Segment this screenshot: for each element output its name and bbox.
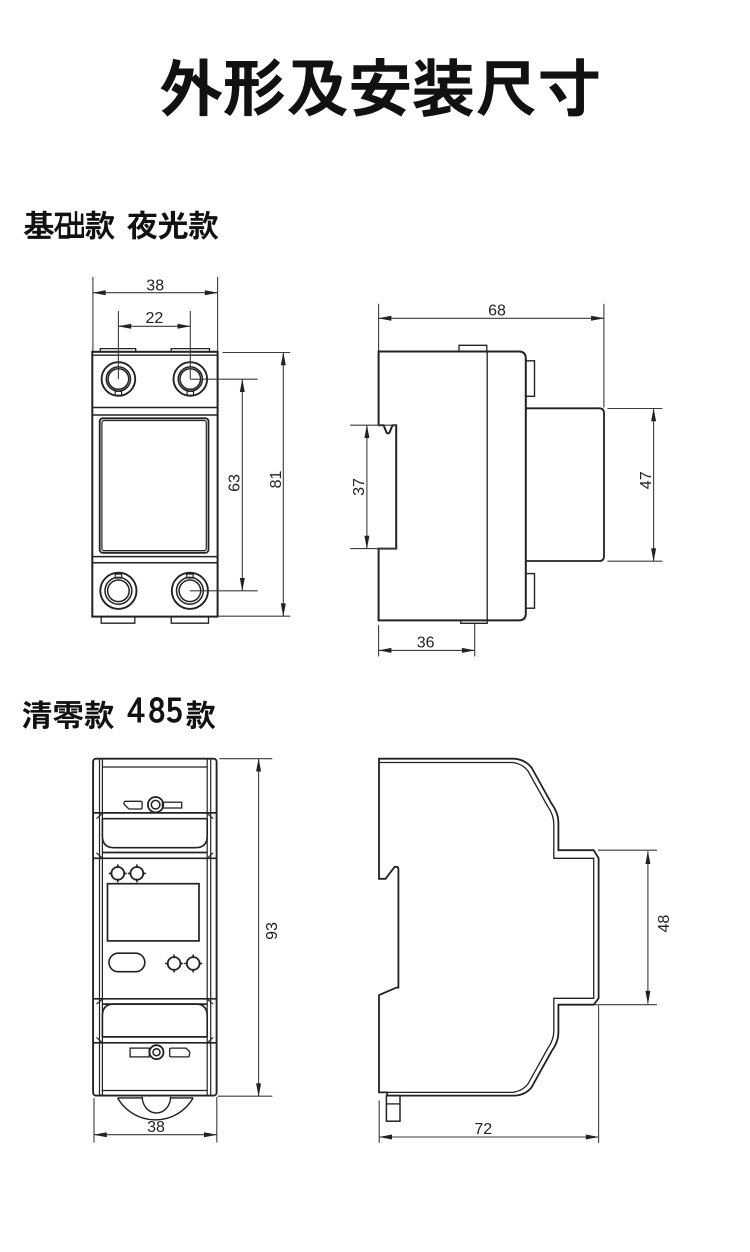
svg-text:37: 37 — [351, 478, 368, 496]
svg-text:36: 36 — [417, 634, 435, 651]
svg-text:72: 72 — [474, 1121, 492, 1138]
svg-text:38: 38 — [147, 1119, 165, 1136]
svg-text:81: 81 — [268, 471, 285, 489]
svg-text:68: 68 — [488, 303, 506, 320]
svg-text:63: 63 — [226, 474, 243, 492]
svg-text:38: 38 — [146, 277, 164, 294]
svg-text:47: 47 — [638, 471, 655, 489]
svg-text:93: 93 — [264, 922, 281, 940]
svg-text:48: 48 — [656, 915, 673, 933]
svg-text:22: 22 — [146, 310, 164, 327]
